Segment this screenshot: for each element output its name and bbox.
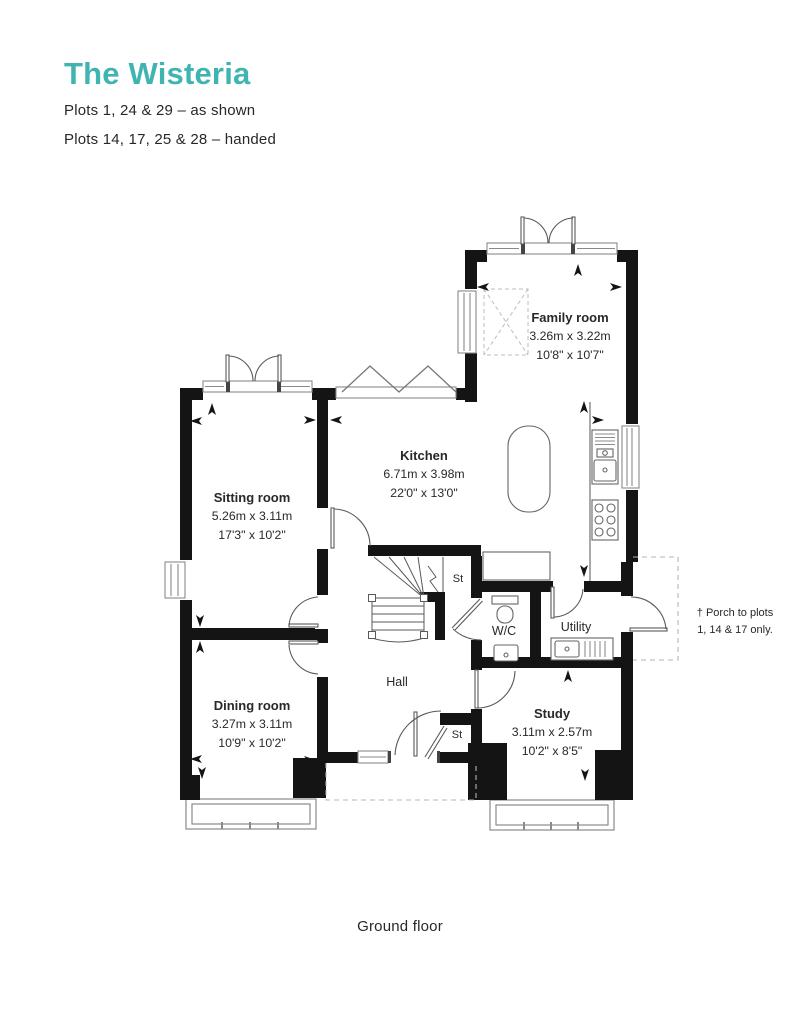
room-label-study: Study 3.11m x 2.57m 10'2" x 8'5" [512,704,592,761]
room-dim-imperial: 10'2" x 8'5" [512,742,592,761]
room-name: Family room [529,308,610,327]
kitchen-fixtures [483,402,618,581]
room-name: Study [512,704,592,723]
room-label-family: Family room 3.26m x 3.22m 10'8" x 10'7" [529,308,610,365]
utility-fixtures [551,638,613,660]
room-dim-imperial: 17'3" x 10'2" [212,526,292,545]
bay-windows [186,799,614,830]
room-dim-metric: 6.71m x 3.98m [383,465,464,484]
room-name: Kitchen [383,446,464,465]
room-dim-metric: 5.26m x 3.11m [212,507,292,526]
label-entrance-store: St [452,729,462,741]
kitchen-island [508,426,550,512]
porch-note-line1: † Porch to plots [697,605,773,622]
label-stair-store: St [453,573,463,585]
porch-note-line2: 1, 14 & 17 only. [697,622,773,639]
room-dim-metric: 3.11m x 2.57m [512,723,592,742]
room-name: Sitting room [212,488,292,507]
room-label-sitting: Sitting room 5.26m x 3.11m 17'3" x 10'2" [212,488,292,545]
room-dim-imperial: 22'0" x 13'0" [383,484,464,503]
porch-note: † Porch to plots 1, 14 & 17 only. [697,605,773,639]
room-dim-metric: 3.27m x 3.11m [212,715,292,734]
room-label-wc: W/C [492,624,516,638]
room-label-kitchen: Kitchen 6.71m x 3.98m 22'0" x 13'0" [383,446,464,503]
floor-caption: Ground floor [357,918,443,935]
room-label-utility: Utility [561,620,592,634]
rooflight-box [484,289,528,355]
brochure-page: The Wisteria Plots 1, 24 & 29 – as shown… [0,0,800,1036]
room-name: Dining room [212,696,292,715]
room-dim-imperial: 10'9" x 10'2" [212,734,292,753]
room-dim-imperial: 10'8" x 10'7" [529,346,610,365]
room-dim-metric: 3.26m x 3.22m [529,327,610,346]
floorplan-drawing [0,0,800,1036]
room-label-dining: Dining room 3.27m x 3.11m 10'9" x 10'2" [212,696,292,753]
room-label-hall: Hall [386,675,408,689]
